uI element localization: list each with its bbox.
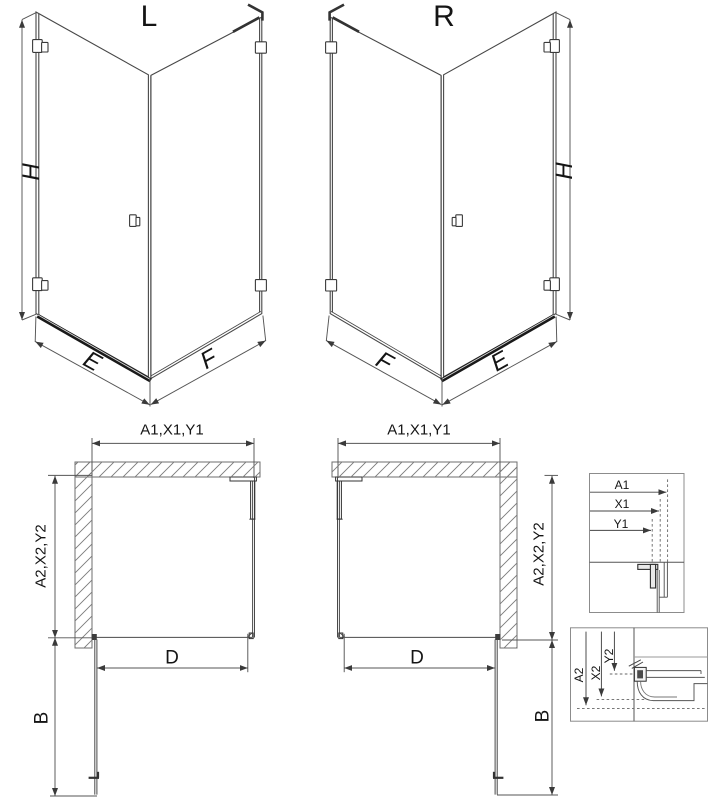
plan-left-linework	[75, 438, 260, 795]
detail-x2-label: X2	[590, 666, 602, 681]
detail-width-offsets	[590, 474, 685, 613]
technical-drawing-canvas	[0, 0, 720, 800]
plan-left-width-dim-label: A1,X1,Y1	[140, 423, 203, 438]
variant-label-left: L	[141, 2, 158, 32]
plan-right-door-swing-label: B	[534, 710, 553, 723]
detail-y1-label: Y1	[614, 518, 629, 530]
plan-left-depth-dim-label: A2,X2,Y2	[34, 524, 49, 587]
detail-a1-label: A1	[615, 479, 630, 491]
detail-a2-label: A2	[573, 668, 585, 683]
height-dim-label-left: H	[20, 163, 44, 180]
plan-right-width-dim-label: A1,X1,Y1	[387, 423, 450, 438]
plan-left-door-swing-label: B	[33, 712, 52, 725]
detail-y2-label: Y2	[603, 649, 615, 664]
variant-label-right: R	[433, 2, 455, 32]
isometric-right-linework	[326, 5, 570, 407]
height-dim-label-right: H	[553, 162, 577, 179]
plan-right-linework	[332, 438, 517, 795]
plan-right-depth-dim-label: A2,X2,Y2	[532, 522, 547, 585]
plan-left-door-width-label: D	[165, 649, 179, 668]
detail-x1-label: X1	[615, 498, 630, 510]
plan-right-door-width-label: D	[410, 649, 424, 668]
wall-hatching	[75, 462, 517, 648]
technical-drawing-page: L R H H E F F E A1,X1,Y1 A1,X1,Y1 A2,X2,…	[0, 0, 720, 800]
isometric-left-linework	[22, 5, 266, 407]
